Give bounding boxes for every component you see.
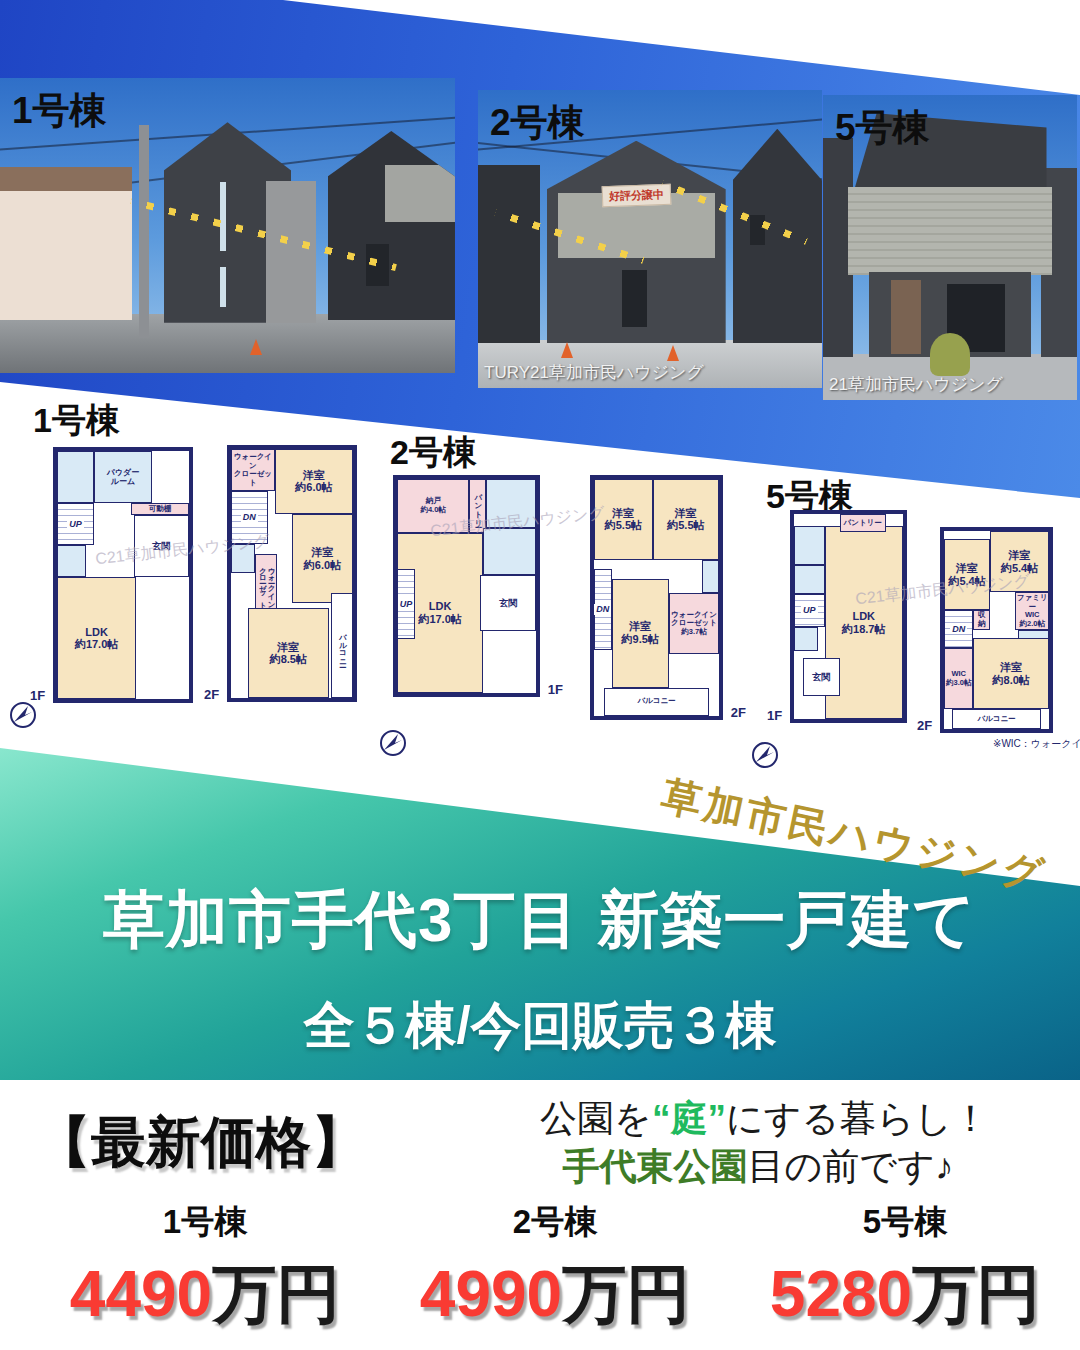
plan-room-closet: 収納 xyxy=(973,610,990,630)
floor-tag: 2F xyxy=(204,687,219,702)
neighbor-house xyxy=(0,167,132,320)
plan-room-wet xyxy=(57,545,86,577)
plan-group-label-1: 1号棟 xyxy=(33,398,120,444)
photo-label-2: 2号棟 xyxy=(490,98,585,148)
traffic-cone xyxy=(250,339,262,355)
plan-room-balcony: バルコニー xyxy=(604,688,709,716)
catch-text: 公園を xyxy=(540,1098,652,1139)
floor-tag: 2F xyxy=(731,705,746,720)
traffic-cone xyxy=(561,342,573,358)
plan-room-closet: ウォークイン クローゼット 約3.7帖 xyxy=(669,593,719,655)
plan-room-stairs: UP xyxy=(794,594,825,627)
catch-text: 目の前です♪ xyxy=(747,1146,953,1187)
shrub xyxy=(930,333,971,376)
compass-icon xyxy=(8,700,38,730)
plan-room-wet xyxy=(702,560,720,593)
latest-price-heading: 【最新価格】 xyxy=(36,1106,366,1180)
price-unit: 万円 xyxy=(912,1258,1040,1330)
catch-highlight-park: 手代東公園 xyxy=(562,1146,747,1187)
property-subtitle: 全５棟/今回販売３棟 xyxy=(0,992,1080,1061)
price-value: 4990万円 xyxy=(380,1251,730,1338)
photo-building-2: 好評分譲中 2号棟 TURY21草加市民ハウジング xyxy=(478,90,822,388)
price-column-5: 5号棟 5280万円 xyxy=(730,1200,1080,1338)
price-unit: 万円 xyxy=(212,1258,340,1330)
photo-building-5: 5号棟 21草加市民ハウジング xyxy=(823,95,1077,400)
building-name: 1号棟 xyxy=(30,1200,380,1245)
plan-room-closet: WIC 約3.0帖 xyxy=(944,648,973,709)
utility-pole xyxy=(139,125,149,337)
building-name: 2号棟 xyxy=(380,1200,730,1245)
right-house xyxy=(733,129,822,344)
photo-label-5: 5号棟 xyxy=(835,103,930,153)
entrance-door xyxy=(891,280,920,353)
main-house xyxy=(547,141,726,344)
plan-room-room: 洋室 約6.0帖 xyxy=(275,449,353,514)
wic-note: ※WIC：ウォークインクローゼ xyxy=(993,737,1080,751)
sale-banner: 好評分譲中 xyxy=(601,184,671,207)
building-name: 5号棟 xyxy=(730,1200,1080,1245)
price-unit: 万円 xyxy=(562,1258,690,1330)
plan-group-label-2: 2号棟 xyxy=(390,430,477,476)
floor-tag: 2F xyxy=(917,718,932,733)
plan-room-wet xyxy=(794,627,818,652)
floor-tag: 1F xyxy=(548,682,563,697)
price-column-2: 2号棟 4990万円 xyxy=(380,1200,730,1338)
property-title: 草加市手代3丁目 新築一戸建て xyxy=(0,878,1080,962)
plan-room-shelf: 可動棚 xyxy=(131,503,189,515)
plan-room-stairs: DN xyxy=(944,610,973,648)
catch-highlight-garden: “庭” xyxy=(652,1098,726,1139)
price-number: 4990 xyxy=(420,1258,562,1330)
floor-plan-2-1f: 1F LDK 約17.0帖納戸 約4.0帖パントリー玄関UP xyxy=(393,475,540,697)
price-value: 4490万円 xyxy=(30,1251,380,1338)
catch-text: にする暮らし！ xyxy=(726,1098,989,1139)
catch-copy-line-2: 手代東公園目の前です♪ xyxy=(540,1142,976,1192)
photo-building-1: 1号棟 xyxy=(0,78,455,373)
compass-icon xyxy=(750,740,780,770)
photo-watermark: TURY21草加市民ハウジング xyxy=(484,361,704,384)
plan-room-room: 洋室 約6.0帖 xyxy=(292,514,353,604)
plan-room-closet: ウォークイン クローゼット xyxy=(231,449,275,491)
price-column-1: 1号棟 4490万円 xyxy=(30,1200,380,1338)
price-value: 5280万円 xyxy=(730,1251,1080,1338)
plan-room-room: 洋室 約8.0帖 xyxy=(973,638,1049,709)
right-house xyxy=(328,131,455,320)
left-house-edge xyxy=(478,165,540,344)
catch-copy-line-1: 公園を“庭”にする暮らし！ xyxy=(540,1094,976,1144)
floor-plan-1-2f: 2F ウォークイン クローゼット洋室 約6.0帖DNウォークイン クローゼット洋… xyxy=(227,445,357,702)
plan-room-wet xyxy=(794,526,825,565)
plan-room-wet xyxy=(794,565,825,594)
floor-plan-2-2f: 2F 洋室 約5.5帖洋室 約5.5帖DNウォークイン クローゼット 約3.7帖… xyxy=(590,475,723,720)
compass-icon xyxy=(378,728,408,758)
floor-plan-1-1f: 1F LDK 約17.0帖パウダー ルーム可動棚UP玄関 xyxy=(53,447,193,703)
plan-room-closet: パントリー xyxy=(840,514,886,532)
plan-room-hall: 玄関 xyxy=(480,575,536,631)
floor-plan-5-2f: 2F 洋室 約5.4帖洋室 約5.4帖ファミリー WIC 約2.0帖DN収納洋室… xyxy=(940,527,1053,733)
plan-room-balcony: バルコニー xyxy=(331,593,353,698)
plan-room-stairs: DN xyxy=(594,569,612,650)
price-number: 5280 xyxy=(770,1258,912,1330)
plan-room-wet xyxy=(57,451,94,503)
price-number: 4490 xyxy=(70,1258,212,1330)
stone-accent-wall xyxy=(266,181,316,323)
photo-label-1: 1号棟 xyxy=(12,86,107,136)
stone-accent-wall xyxy=(848,187,1051,275)
traffic-cone xyxy=(667,345,679,361)
floor-tag: 1F xyxy=(767,708,782,723)
plan-room-room: 洋室 約8.5帖 xyxy=(248,608,329,698)
plan-room-hall: 玄関 xyxy=(803,658,840,697)
floor-plan-5-1f: 1F LDK 約18.7帖パントリーUP玄関 xyxy=(790,510,907,723)
plan-room-stairs: UP xyxy=(397,569,415,640)
photo-watermark: 21草加市民ハウジング xyxy=(829,373,1003,396)
plan-room-closet: ウォークイン クローゼット xyxy=(255,554,277,614)
plan-room-closet: ファミリー WIC 約2.0帖 xyxy=(1015,592,1049,630)
plan-room-room: LDK 約17.0帖 xyxy=(57,577,136,699)
plan-room-balcony: バルコニー xyxy=(952,709,1040,729)
plan-room-stairs: UP xyxy=(57,503,94,545)
plan-room-room: 洋室 約5.5帖 xyxy=(653,479,719,560)
plan-room-wet: パウダー ルーム xyxy=(94,451,152,503)
plan-room-room: 洋室 約9.5帖 xyxy=(612,579,670,688)
